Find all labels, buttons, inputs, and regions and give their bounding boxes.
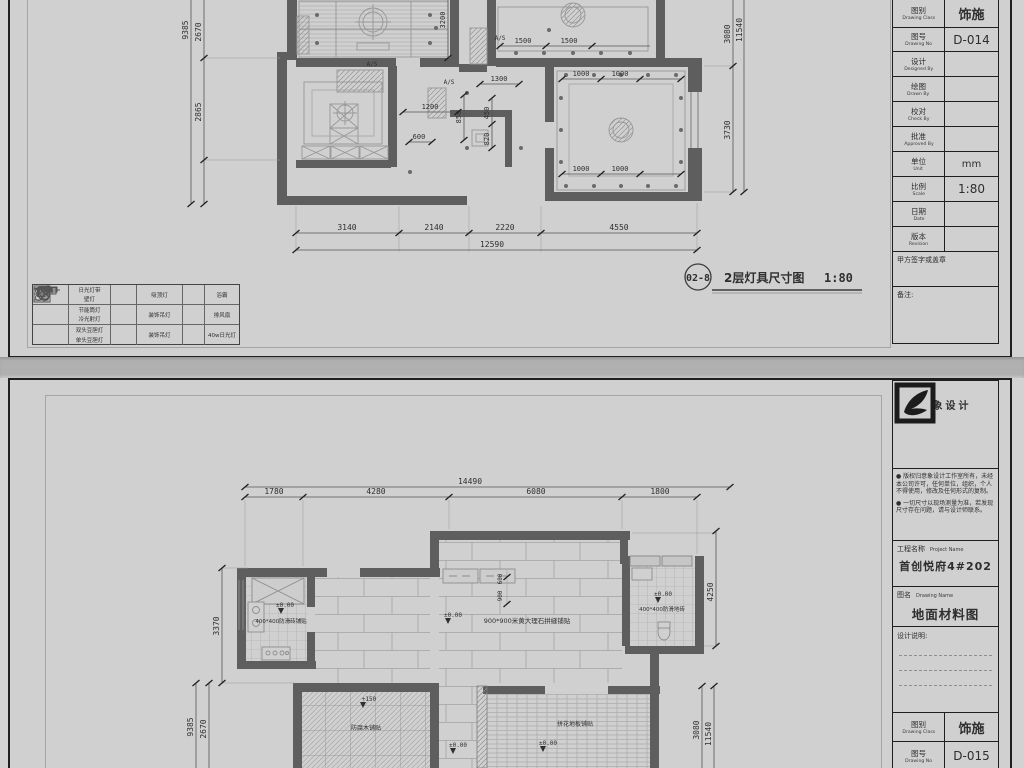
svg-text:1200: 1200	[422, 103, 439, 111]
svg-text:2220: 2220	[495, 223, 514, 232]
level-marker: ±0.00	[276, 602, 294, 609]
svg-text:3080: 3080	[723, 24, 732, 43]
svg-text:1300: 1300	[491, 75, 508, 83]
svg-text:1780: 1780	[264, 487, 283, 496]
svg-text:2670: 2670	[194, 22, 203, 41]
title-block-1: 图别Drawing Class饰施 图号Drawing NoD-014 设计De…	[892, 0, 999, 344]
note-line	[899, 670, 992, 671]
legend-label: 日光灯带	[78, 286, 100, 294]
as-label: A/S	[444, 79, 455, 86]
balcony-floor-label: 防腐木铺贴	[351, 724, 381, 732]
legend-label: 吸顶灯	[151, 291, 168, 299]
project-name-cell: 工程名称Project Name 首创悦府4#202	[893, 541, 998, 587]
level-marker: +150	[362, 696, 377, 703]
design-notes-cell: 设计说明:	[893, 627, 998, 713]
field-value: 饰施	[945, 713, 998, 741]
legend-label: 排风扇	[214, 311, 231, 319]
svg-text:1000: 1000	[612, 165, 629, 173]
company-logo-cell: 意象设计	[893, 381, 998, 469]
level-marker: ±0.00	[654, 591, 672, 598]
svg-text:3730: 3730	[723, 120, 732, 139]
field-value: 饰施	[945, 0, 998, 27]
copyright-note-2: ● 一切尺寸以现场测量为准，若发现尺寸存在问题，请与设计师联系。	[896, 500, 995, 515]
floor-material-plan-drawing: 14490 1780 4280 6080 1800 3370 9385 2670…	[0, 380, 890, 768]
svg-text:3140: 3140	[337, 223, 356, 232]
drawing-name-value: 地面材料图	[893, 604, 998, 623]
drawing-number: 02-8	[686, 273, 710, 284]
svg-text:820: 820	[483, 133, 491, 146]
kitchen-floor-label: 400*400防滑砖铺贴	[255, 617, 307, 625]
legend-label: 节能筒灯	[78, 306, 100, 314]
company-logo-icon	[893, 381, 937, 425]
svg-text:4250: 4250	[706, 582, 715, 601]
drawing-name-cell: 图名Drawing Name 地面材料图	[893, 587, 998, 627]
level-marker: ±0.00	[449, 742, 467, 749]
svg-text:9385: 9385	[181, 20, 190, 39]
legend-label: 冷光射灯	[78, 315, 100, 323]
living-floor-label: 900*900米黄大理石拼缝铺贴	[484, 616, 571, 625]
svg-text:2670: 2670	[199, 719, 208, 738]
legend-label: 单头豆胆灯	[76, 336, 104, 344]
field-value: D-014	[945, 28, 998, 51]
signature-cell: 甲方签字或盖章	[893, 252, 998, 287]
legend-label: 40w日光灯	[208, 331, 236, 339]
legend-label: 装饰吊灯	[148, 311, 170, 319]
project-name-value: 首创悦府4#202	[893, 558, 998, 574]
svg-text:1500: 1500	[561, 37, 578, 45]
field-value: D-015	[945, 742, 998, 768]
level-marker: ±0.00	[539, 740, 557, 747]
svg-text:1000: 1000	[573, 165, 590, 173]
copyright-notes: ● 版权归意象设计工作室所有，未经本公司许可，任何单位，组织，个人不得使用，修改…	[893, 469, 998, 541]
svg-text:2140: 2140	[424, 223, 443, 232]
page: 3140 2140 2220 4550 12590 9385 2670 2865…	[0, 0, 1024, 768]
field-label: 图别	[911, 6, 926, 15]
note-line	[899, 655, 992, 656]
svg-text:14490: 14490	[458, 477, 482, 486]
svg-text:6080: 6080	[526, 487, 545, 496]
svg-text:1000: 1000	[573, 70, 590, 78]
svg-text:12590: 12590	[480, 240, 504, 249]
svg-text:1000: 1000	[612, 70, 629, 78]
drawing-title: 02-8 2层灯具尺寸图 1:80	[685, 264, 862, 293]
svg-text:600: 600	[413, 133, 426, 141]
note-line	[899, 685, 992, 686]
remarks-cell: 备注:	[893, 287, 998, 343]
svg-text:9385: 9385	[186, 717, 195, 736]
svg-text:11540: 11540	[735, 18, 744, 42]
svg-text:3080: 3080	[692, 720, 701, 739]
svg-text:1500: 1500	[515, 37, 532, 45]
svg-text:850: 850	[455, 111, 463, 124]
level-marker: ±0.00	[444, 612, 462, 619]
bedroom-floor-label: 拼花地板铺贴	[557, 720, 593, 728]
legend-label: 壁灯	[84, 295, 95, 303]
svg-text:2865: 2865	[194, 102, 203, 121]
drawing-scale: 1:80	[824, 271, 853, 285]
legend-label: 浴霸	[216, 291, 227, 299]
copyright-note-1: ● 版权归意象设计工作室所有，未经本公司许可，任何单位，组织，个人不得使用，修改…	[896, 473, 995, 496]
svg-text:1800: 1800	[650, 487, 669, 496]
svg-text:4280: 4280	[366, 487, 385, 496]
sheet-separator	[0, 357, 1024, 378]
drawing-name: 2层灯具尺寸图	[724, 270, 804, 285]
as-label: A/S	[495, 35, 506, 42]
svg-text:11540: 11540	[704, 722, 713, 746]
svg-text:900: 900	[497, 590, 504, 601]
bath-floor-label: 400*400防滑地砖	[639, 605, 685, 613]
svg-text:4550: 4550	[609, 223, 628, 232]
window-lines	[691, 92, 698, 148]
svg-text:3200: 3200	[439, 12, 447, 29]
legend-label: 双头豆胆灯	[76, 326, 104, 334]
svg-text:450: 450	[483, 107, 491, 120]
legend-label: 装饰吊灯	[148, 331, 170, 339]
svg-text:3370: 3370	[212, 616, 221, 635]
svg-text:600: 600	[497, 573, 504, 584]
as-label: A/S	[367, 61, 378, 68]
title-block-2: 意象设计 ● 版权归意象设计工作室所有，未经本公司许可，任何单位，组织，个人不得…	[892, 380, 999, 768]
lighting-legend: 日光灯带 壁灯 吸顶灯 浴霸 节能筒灯 冷光射灯 装饰吊灯 排风扇 双头豆胆灯 …	[32, 284, 240, 345]
